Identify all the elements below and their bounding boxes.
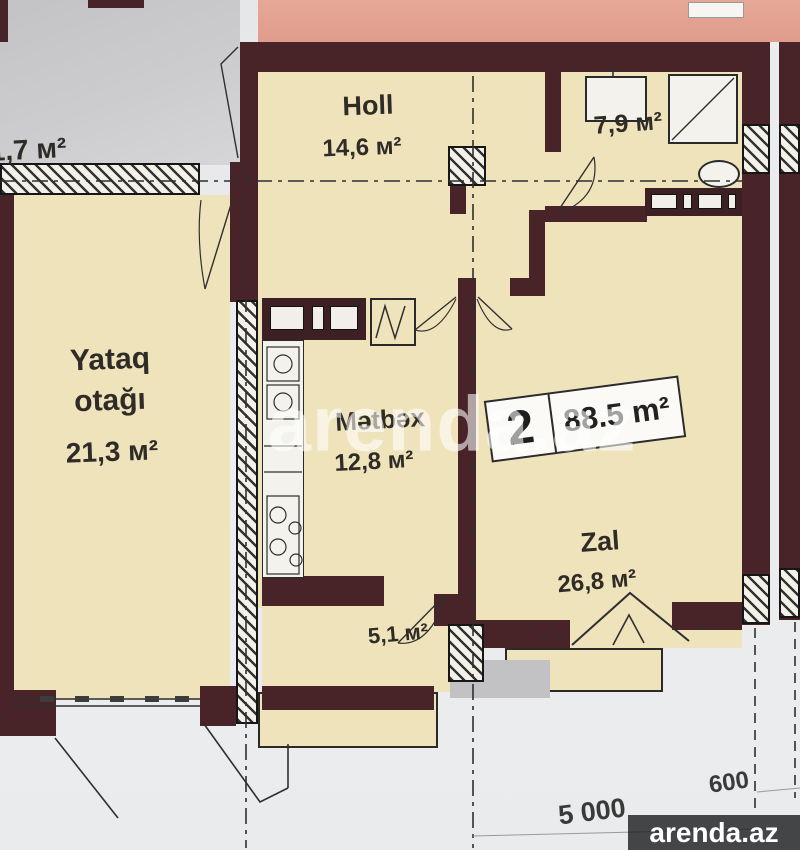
neighbor-stamp-box [688,2,744,18]
wall-pillar-stub [450,186,466,214]
wall-zal-nook-v [529,210,545,296]
wall-kitchen-bottom [262,576,384,606]
floorplan-canvas: 1,7 м² Holl 14,6 м² 7,9 м² Yataq otağı 2… [0,0,800,850]
wall-sliver-top [88,0,144,8]
bedroom-name-line2: otağı [74,383,147,419]
wall-bedroom-left [0,165,14,735]
wall-balcony51-bottom [262,686,434,710]
wardrobe-slot [330,306,358,330]
wall-holl-left [230,162,258,302]
toilet [698,160,740,188]
wall-bath-bottom [545,206,647,222]
bedroom-name-line1: Yataq [69,342,150,379]
shower-tray [668,74,738,144]
holl-area-label: 14,6 м² [322,133,402,164]
hatch-pillar-bottom [448,624,484,682]
wall-sliver-corner [0,0,8,42]
wardrobe-bath-bottom [645,188,742,216]
balcony-area-label: 5,1 м² [367,618,429,649]
dimension-600: 600 [707,766,751,799]
hatch-bedroom-top [0,163,200,195]
wardrobe-slot [651,194,677,209]
zal-name-label: Zal [579,525,620,559]
wardrobe-kitchen-top [262,298,366,340]
wall-top [240,42,800,72]
wall-bedroom-bottom-right [200,686,236,726]
wall-zal-bottom-right [672,602,742,630]
neighbor-area-label: 1,7 м² [0,132,67,168]
wardrobe-slot [728,194,736,209]
expansion-gap [770,42,779,628]
bathroom-area-label: 7,9 м² [593,107,663,141]
wardrobe-slot [683,194,692,209]
dimension-5000: 5 000 [557,792,628,831]
arenda-logo: arenda.az [628,815,800,850]
wall-bath-left [545,72,561,152]
wardrobe-slot [698,194,722,209]
hatch-bedroom-kitchen [236,300,258,724]
wall-entry-left [240,42,258,164]
hatch-right-upper-b [779,124,800,174]
center-watermark: arenda.az [268,379,637,470]
wall-kitchen-bottom-stub [434,594,458,626]
holl-name-label: Holl [342,90,394,123]
wall-bedroom-bottom-left [0,690,56,736]
wall-zal-bottom-left [476,620,570,648]
room-fill-balcony51 [262,608,458,692]
room-fill-bath-zal [476,72,742,648]
wardrobe-slot [312,306,324,330]
hatch-pillar-mid [448,146,486,186]
hatch-right-lower-b [779,568,800,618]
hatch-right-upper-a [742,124,770,174]
appliance-box [370,298,416,346]
hatch-right-lower-a [742,574,770,624]
bedroom-area-label: 21,3 м² [65,434,158,469]
wardrobe-slot [270,306,304,330]
